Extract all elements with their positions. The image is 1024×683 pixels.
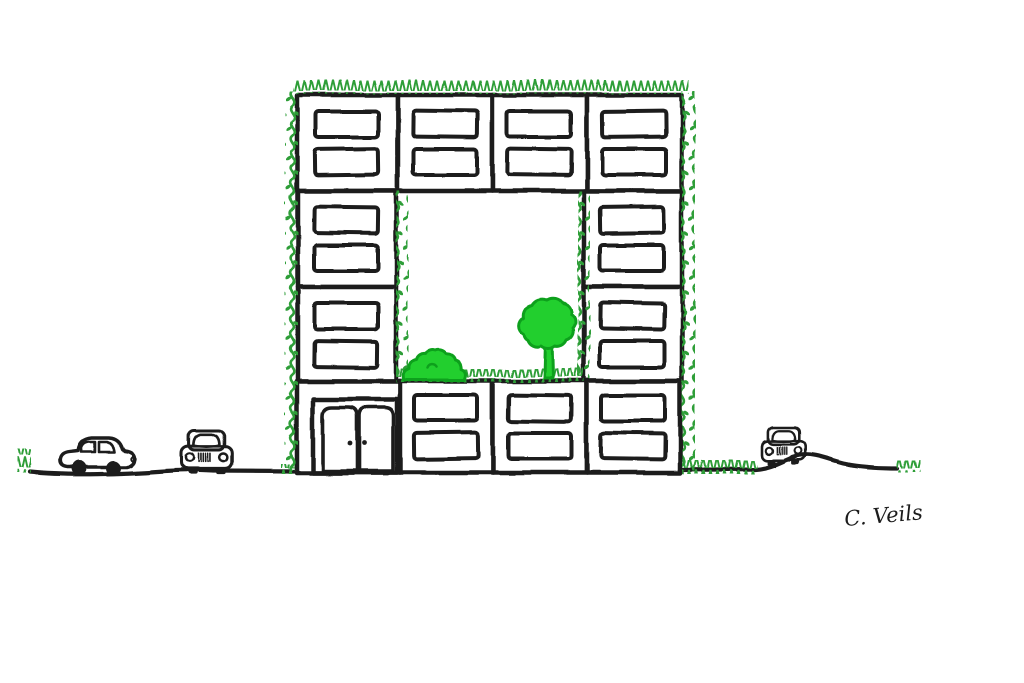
car-wheel [106,461,121,476]
window [600,245,664,271]
ivy-vine-courtyard-right [578,191,590,379]
window [413,149,477,175]
door-handle [348,441,353,446]
ground-line-left [30,470,298,474]
building-floor-2 [298,287,682,381]
window [507,111,571,137]
building-floor-top [297,95,682,191]
courtyard-bush [403,350,465,380]
window [507,149,571,176]
building [297,95,682,473]
tree-crown [519,298,575,348]
grass-tuft-far-right [897,460,920,472]
building-floor-3 [298,191,682,287]
car-side-view [60,438,135,476]
car-window [81,442,95,452]
artist-signature: C. Veils [843,500,924,531]
window [601,395,665,421]
grass-roof-edge [293,80,689,94]
window [600,302,664,329]
window [314,341,378,368]
car-window [99,442,114,452]
grass-tuft-far-left [17,449,31,473]
window [602,149,666,175]
window [413,111,477,138]
car-wheel [72,461,87,476]
window [601,433,665,460]
window [414,395,478,421]
ivy-vine-outer-right [682,91,695,471]
drawing: C. Veils [0,0,1024,683]
ivy-vine-courtyard-left [396,191,408,379]
courtyard-tree [519,298,575,378]
window [314,207,378,234]
ivy-vine-outer-left [285,91,298,471]
window [315,111,379,137]
car-front-view-left [181,430,232,475]
window [508,433,572,459]
window [600,207,664,234]
window [508,395,572,422]
building-floor-ground [297,381,680,473]
door-handle [362,441,367,446]
window [602,111,666,138]
window [314,245,378,271]
window [414,433,478,460]
window [600,341,664,367]
window [314,303,378,329]
window [315,149,379,176]
car-front-view-right [762,427,805,465]
illustration-canvas: C. Veils [0,0,1024,683]
